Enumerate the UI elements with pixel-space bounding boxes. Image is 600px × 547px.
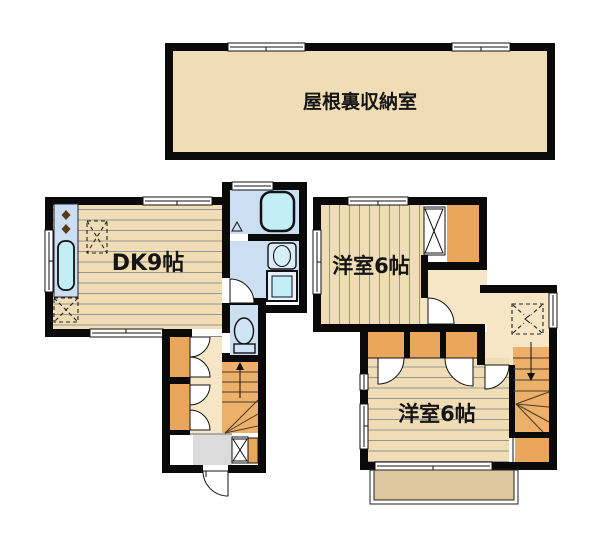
bedroom-front-label: 洋室6帖 [332,254,410,278]
hallway-window-right [549,293,557,328]
washroom-doorway [222,278,230,303]
washbasin-icon [268,243,296,269]
bedroom-front-window-left [313,230,321,294]
bathtub-icon [261,192,294,231]
entrance-door-arc [194,471,228,496]
closet-2f-back [368,332,477,358]
closet-bifold-door-icon [424,207,445,255]
bedroom-back-window-left-large [360,404,368,449]
balcony-sliding-door [375,462,492,470]
bedroom-back-label: 洋室6帖 [398,402,476,426]
closet-1f-upper [170,337,190,377]
washing-machine-icon [267,271,297,301]
floor-plan: 屋根裏収納室 [0,0,600,547]
toilet-doorway [222,333,230,353]
attic-window-left [228,43,305,51]
entrance-cabinet [248,438,258,463]
bedroom-2f-front: 洋室6帖 [313,197,487,332]
floor-plan-drawing: 屋根裏収納室 [0,0,600,547]
attic-window-right [452,43,510,51]
kitchen-sink-icon [58,241,74,290]
closet-2f-front [447,205,479,262]
dk-window-bottom [90,329,163,337]
shoe-cabinet-bifold-icon [232,437,248,463]
balcony-floor [374,470,514,500]
dk-window-left [45,230,53,292]
attic-room-label: 屋根裏収納室 [303,90,417,113]
entrance-genkan [193,435,232,465]
bathroom-window [232,182,273,190]
dk-window-top [143,197,212,205]
bedroom-front-window-top [348,197,408,205]
toilet-icon [234,318,255,353]
balcony [370,470,518,504]
dk-hall-doorway [192,329,222,337]
closet-1f-lower [170,384,190,430]
attic-storage-room: 屋根裏収納室 [165,43,555,160]
dk-room-label: DK9帖 [112,251,185,276]
closet-under-stairs [515,438,549,462]
kitchen-counter [54,204,78,297]
bedroom-back-window-left-small [360,374,368,390]
